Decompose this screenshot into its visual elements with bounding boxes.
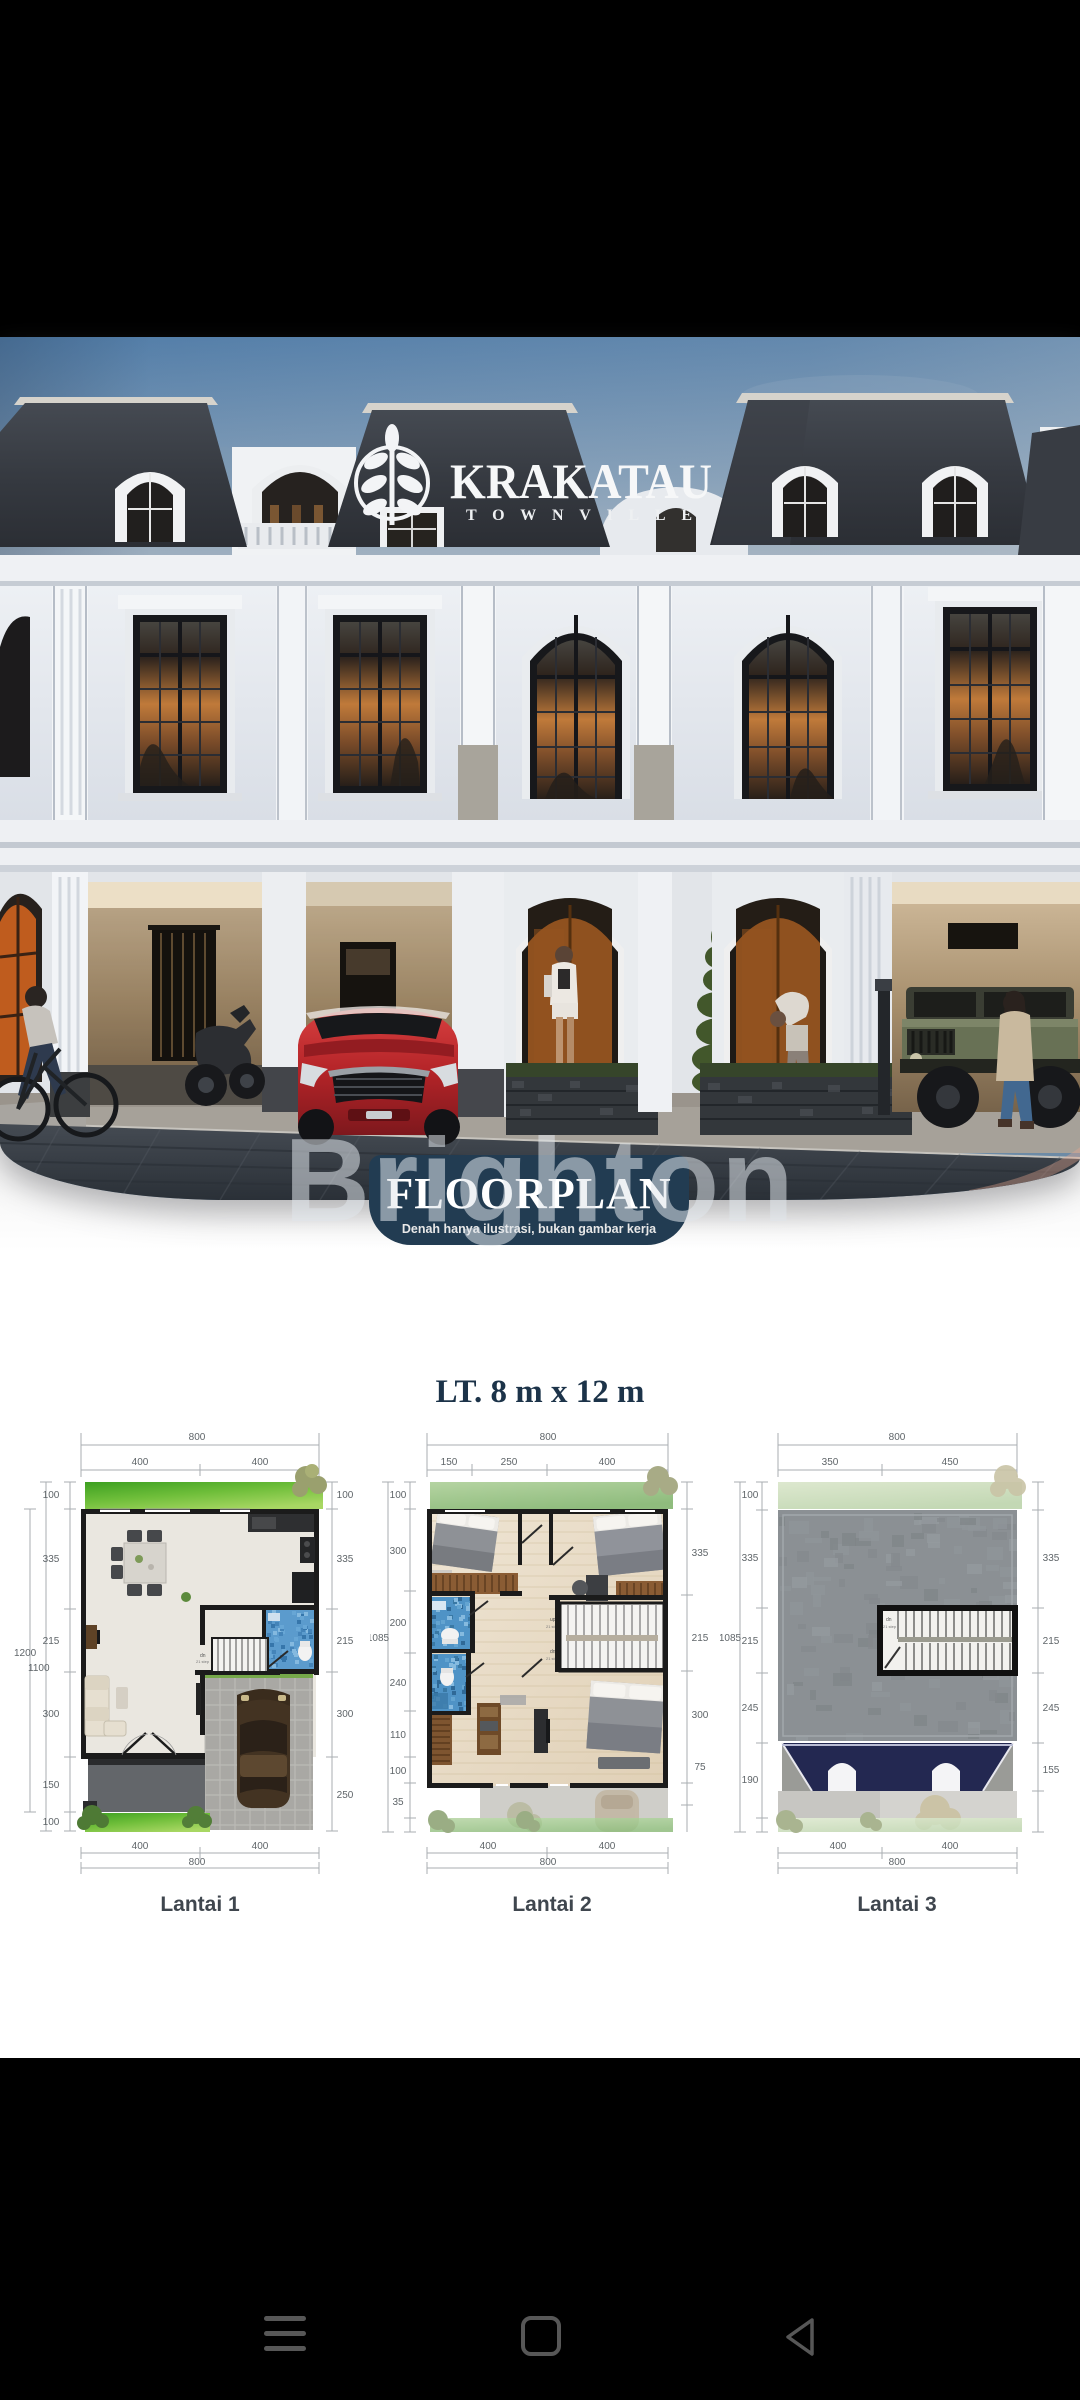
svg-text:100: 100: [43, 1817, 60, 1828]
svg-text:75: 75: [694, 1762, 706, 1773]
svg-text:300: 300: [337, 1709, 354, 1720]
svg-text:245: 245: [742, 1703, 759, 1714]
svg-text:800: 800: [540, 1432, 557, 1443]
svg-text:215: 215: [337, 1636, 354, 1647]
svg-text:215: 215: [1043, 1636, 1060, 1647]
svg-text:450: 450: [942, 1457, 959, 1468]
svg-text:TOWNVILLE: TOWNVILLE: [466, 507, 692, 524]
svg-text:150: 150: [43, 1780, 60, 1791]
svg-text:240: 240: [390, 1678, 407, 1689]
svg-text:1100: 1100: [28, 1663, 50, 1674]
svg-text:21 step: 21 step: [196, 1659, 210, 1664]
svg-text:300: 300: [390, 1546, 407, 1557]
svg-text:100: 100: [337, 1490, 354, 1501]
svg-text:215: 215: [43, 1636, 60, 1647]
svg-text:335: 335: [1043, 1553, 1060, 1564]
svg-text:350: 350: [822, 1457, 839, 1468]
svg-text:dn: dn: [886, 1617, 892, 1623]
svg-text:300: 300: [43, 1709, 60, 1720]
svg-text:400: 400: [942, 1841, 959, 1852]
svg-text:155: 155: [1043, 1765, 1060, 1776]
svg-text:200: 200: [390, 1618, 407, 1629]
svg-text:100: 100: [742, 1490, 759, 1501]
svg-text:400: 400: [252, 1841, 269, 1852]
svg-text:35: 35: [392, 1797, 404, 1808]
svg-text:1085: 1085: [370, 1633, 390, 1644]
svg-text:400: 400: [252, 1457, 269, 1468]
svg-text:800: 800: [189, 1857, 206, 1868]
svg-text:215: 215: [692, 1633, 709, 1644]
svg-text:335: 335: [43, 1554, 60, 1565]
svg-text:400: 400: [830, 1841, 847, 1852]
svg-text:1085: 1085: [720, 1633, 742, 1644]
svg-text:400: 400: [599, 1457, 616, 1468]
svg-text:1200: 1200: [14, 1648, 37, 1659]
svg-text:215: 215: [742, 1636, 759, 1647]
svg-text:150: 150: [441, 1457, 458, 1468]
svg-text:800: 800: [189, 1432, 206, 1443]
svg-text:250: 250: [501, 1457, 518, 1468]
svg-text:up: up: [550, 1617, 556, 1623]
svg-text:21 step: 21 step: [883, 1624, 897, 1629]
svg-text:400: 400: [480, 1841, 497, 1852]
svg-text:190: 190: [742, 1775, 759, 1786]
svg-text:800: 800: [889, 1432, 906, 1443]
svg-text:100: 100: [43, 1490, 60, 1501]
svg-text:400: 400: [599, 1841, 616, 1852]
svg-text:400: 400: [132, 1457, 149, 1468]
svg-text:100: 100: [390, 1766, 407, 1777]
svg-text:110: 110: [390, 1730, 406, 1741]
svg-text:800: 800: [889, 1857, 906, 1868]
svg-text:800: 800: [540, 1857, 557, 1868]
svg-text:250: 250: [337, 1790, 354, 1801]
svg-text:400: 400: [132, 1841, 149, 1852]
svg-text:300: 300: [692, 1710, 709, 1721]
svg-text:100: 100: [390, 1490, 407, 1501]
svg-text:335: 335: [337, 1554, 354, 1565]
svg-text:245: 245: [1043, 1703, 1060, 1714]
svg-text:KRAKATAU: KRAKATAU: [450, 453, 712, 509]
svg-text:335: 335: [692, 1548, 709, 1559]
svg-text:335: 335: [742, 1553, 759, 1564]
svg-text:dn: dn: [550, 1649, 556, 1655]
